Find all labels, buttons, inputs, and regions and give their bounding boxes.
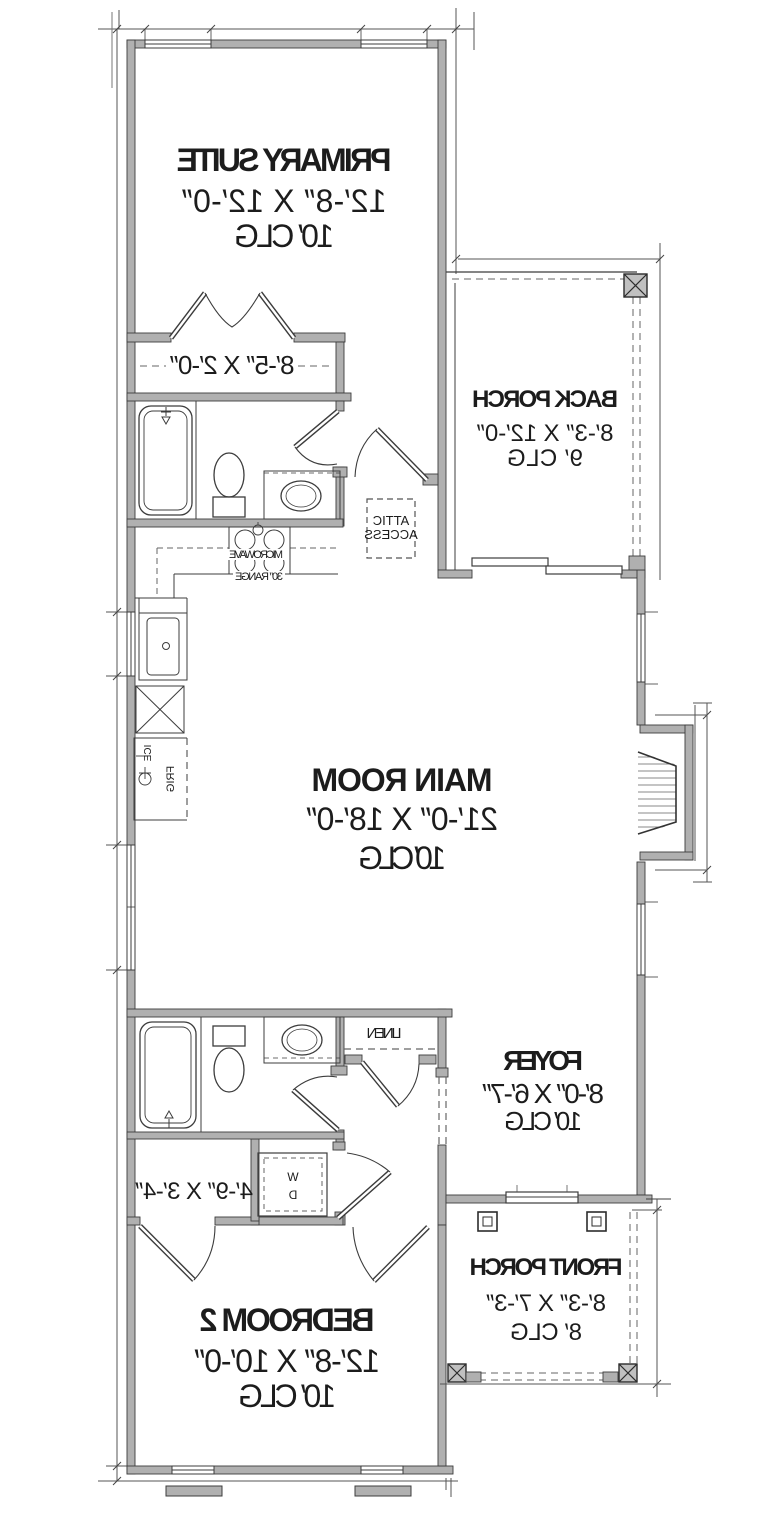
svg-text:8′-5″ X 2′-0″: 8′-5″ X 2′-0″ [170, 350, 295, 380]
svg-text:8′ CLG: 8′ CLG [510, 1319, 582, 1346]
svg-text:PRIMARY SUITE: PRIMARY SUITE [177, 142, 392, 178]
svg-text:ACCESS: ACCESS [364, 527, 418, 542]
svg-text:8′-3″ X 12′-0″: 8′-3″ X 12′-0″ [476, 420, 614, 447]
svg-text:10′ CLG: 10′ CLG [504, 1106, 582, 1136]
svg-text:MICROWAVE: MICROWAVE [229, 549, 283, 561]
svg-text:FRIG: FRIG [165, 766, 177, 792]
svg-text:30″ RANGE: 30″ RANGE [235, 571, 283, 583]
svg-text:21′-0″ X 18′-0″: 21′-0″ X 18′-0″ [306, 801, 498, 837]
svg-text:8′-3″ X 7′-3″: 8′-3″ X 7′-3″ [486, 1290, 607, 1317]
svg-text:BACK PORCH: BACK PORCH [472, 386, 618, 413]
svg-text:ATTIC: ATTIC [373, 513, 410, 528]
svg-text:W: W [287, 1170, 299, 1184]
svg-text:10′ CLG: 10′ CLG [238, 1378, 336, 1414]
svg-text:9′ CLG: 9′ CLG [507, 445, 583, 472]
svg-text:10′ CLG: 10′ CLG [234, 218, 334, 254]
svg-text:ICE: ICE [143, 745, 154, 762]
svg-text:12′-8″ X 10′-0″: 12′-8″ X 10′-0″ [194, 1343, 380, 1379]
svg-text:LINEN: LINEN [367, 1025, 402, 1042]
svg-text:12′-8″ X 12′-0″: 12′-8″ X 12′-0″ [182, 183, 387, 219]
svg-text:4′-9″ X 3′-4″: 4′-9″ X 3′-4″ [135, 1178, 254, 1205]
svg-text:10′ CLG: 10′ CLG [358, 840, 446, 876]
svg-text:MAIN ROOM: MAIN ROOM [312, 762, 493, 798]
svg-text:D: D [288, 1188, 297, 1202]
svg-text:BEDROOM 2: BEDROOM 2 [200, 1302, 375, 1338]
svg-text:8′-0″ X 6′-7″: 8′-0″ X 6′-7″ [482, 1078, 604, 1109]
svg-text:FRONT PORCH: FRONT PORCH [470, 1254, 623, 1281]
svg-text:FOYER: FOYER [503, 1045, 583, 1076]
